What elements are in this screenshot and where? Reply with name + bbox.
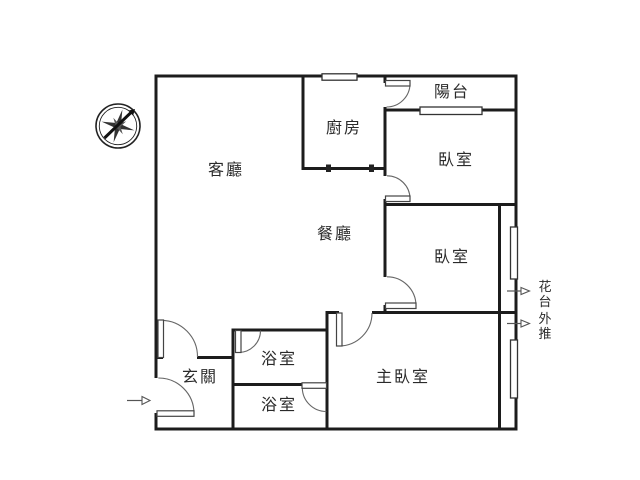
bedroom-mid-door-arc bbox=[387, 277, 416, 306]
jamb-tick-icon bbox=[326, 165, 331, 173]
annotation-char: 外 bbox=[536, 312, 554, 327]
balcony-bedroom-window-icon bbox=[420, 107, 482, 115]
compass-needle bbox=[105, 113, 132, 139]
right-wall-window-upper-icon bbox=[511, 227, 518, 279]
entry-door-leaf-icon bbox=[157, 411, 194, 417]
bedroom-top-door-leaf-icon bbox=[386, 196, 411, 202]
bath-upper-door-arc bbox=[238, 331, 260, 353]
master-door-arc bbox=[339, 313, 372, 346]
bath-upper-door-leaf-icon bbox=[236, 331, 242, 353]
right-wall-window-lower-icon bbox=[511, 340, 518, 398]
master-door-leaf-icon bbox=[337, 313, 343, 346]
bath-lower-door-leaf-icon bbox=[302, 383, 327, 389]
room-label-bedroom-top: 臥室 bbox=[438, 146, 474, 170]
bedroom-mid-door-leaf-icon bbox=[386, 303, 417, 309]
right-arrow-icon bbox=[521, 320, 530, 327]
jamb-tick-icon bbox=[369, 165, 374, 173]
room-label-dining: 餐廳 bbox=[317, 220, 353, 244]
right-arrow-icon bbox=[142, 397, 150, 405]
bath-lower-door-arc bbox=[302, 388, 326, 412]
annotation-char: 花 bbox=[536, 280, 554, 295]
balcony-door-leaf-icon bbox=[386, 81, 411, 87]
annotation-flower-pushout: 花 台 外 推 bbox=[536, 280, 554, 341]
entry-inner-door-arc bbox=[161, 320, 197, 357]
annotation-char: 推 bbox=[536, 327, 554, 342]
floor-plan: 客廳 餐廳 廚房 陽台 臥室 臥室 主臥室 浴室 浴室 玄關 花 台 外 推 bbox=[0, 0, 640, 480]
room-label-living: 客廳 bbox=[208, 156, 244, 180]
room-label-bath-lower: 浴室 bbox=[261, 391, 297, 415]
room-label-master: 主臥室 bbox=[376, 363, 430, 387]
room-label-bedroom-mid: 臥室 bbox=[434, 243, 470, 267]
annotation-char: 台 bbox=[536, 295, 554, 310]
room-label-entry: 玄關 bbox=[182, 363, 218, 387]
bedroom-top-door-arc bbox=[387, 176, 410, 199]
room-label-kitchen: 廚房 bbox=[326, 114, 362, 138]
kitchen-window-icon bbox=[322, 74, 357, 80]
room-label-balcony: 陽台 bbox=[434, 78, 470, 102]
entry-arrow bbox=[127, 397, 150, 405]
balcony-door-arc bbox=[387, 84, 411, 108]
pushout-arrows bbox=[507, 288, 530, 328]
room-label-bath-upper: 浴室 bbox=[261, 345, 297, 369]
right-arrow-icon bbox=[521, 288, 530, 295]
compass-rose-icon bbox=[96, 104, 140, 148]
entry-inner-door-leaf-icon bbox=[158, 320, 164, 358]
